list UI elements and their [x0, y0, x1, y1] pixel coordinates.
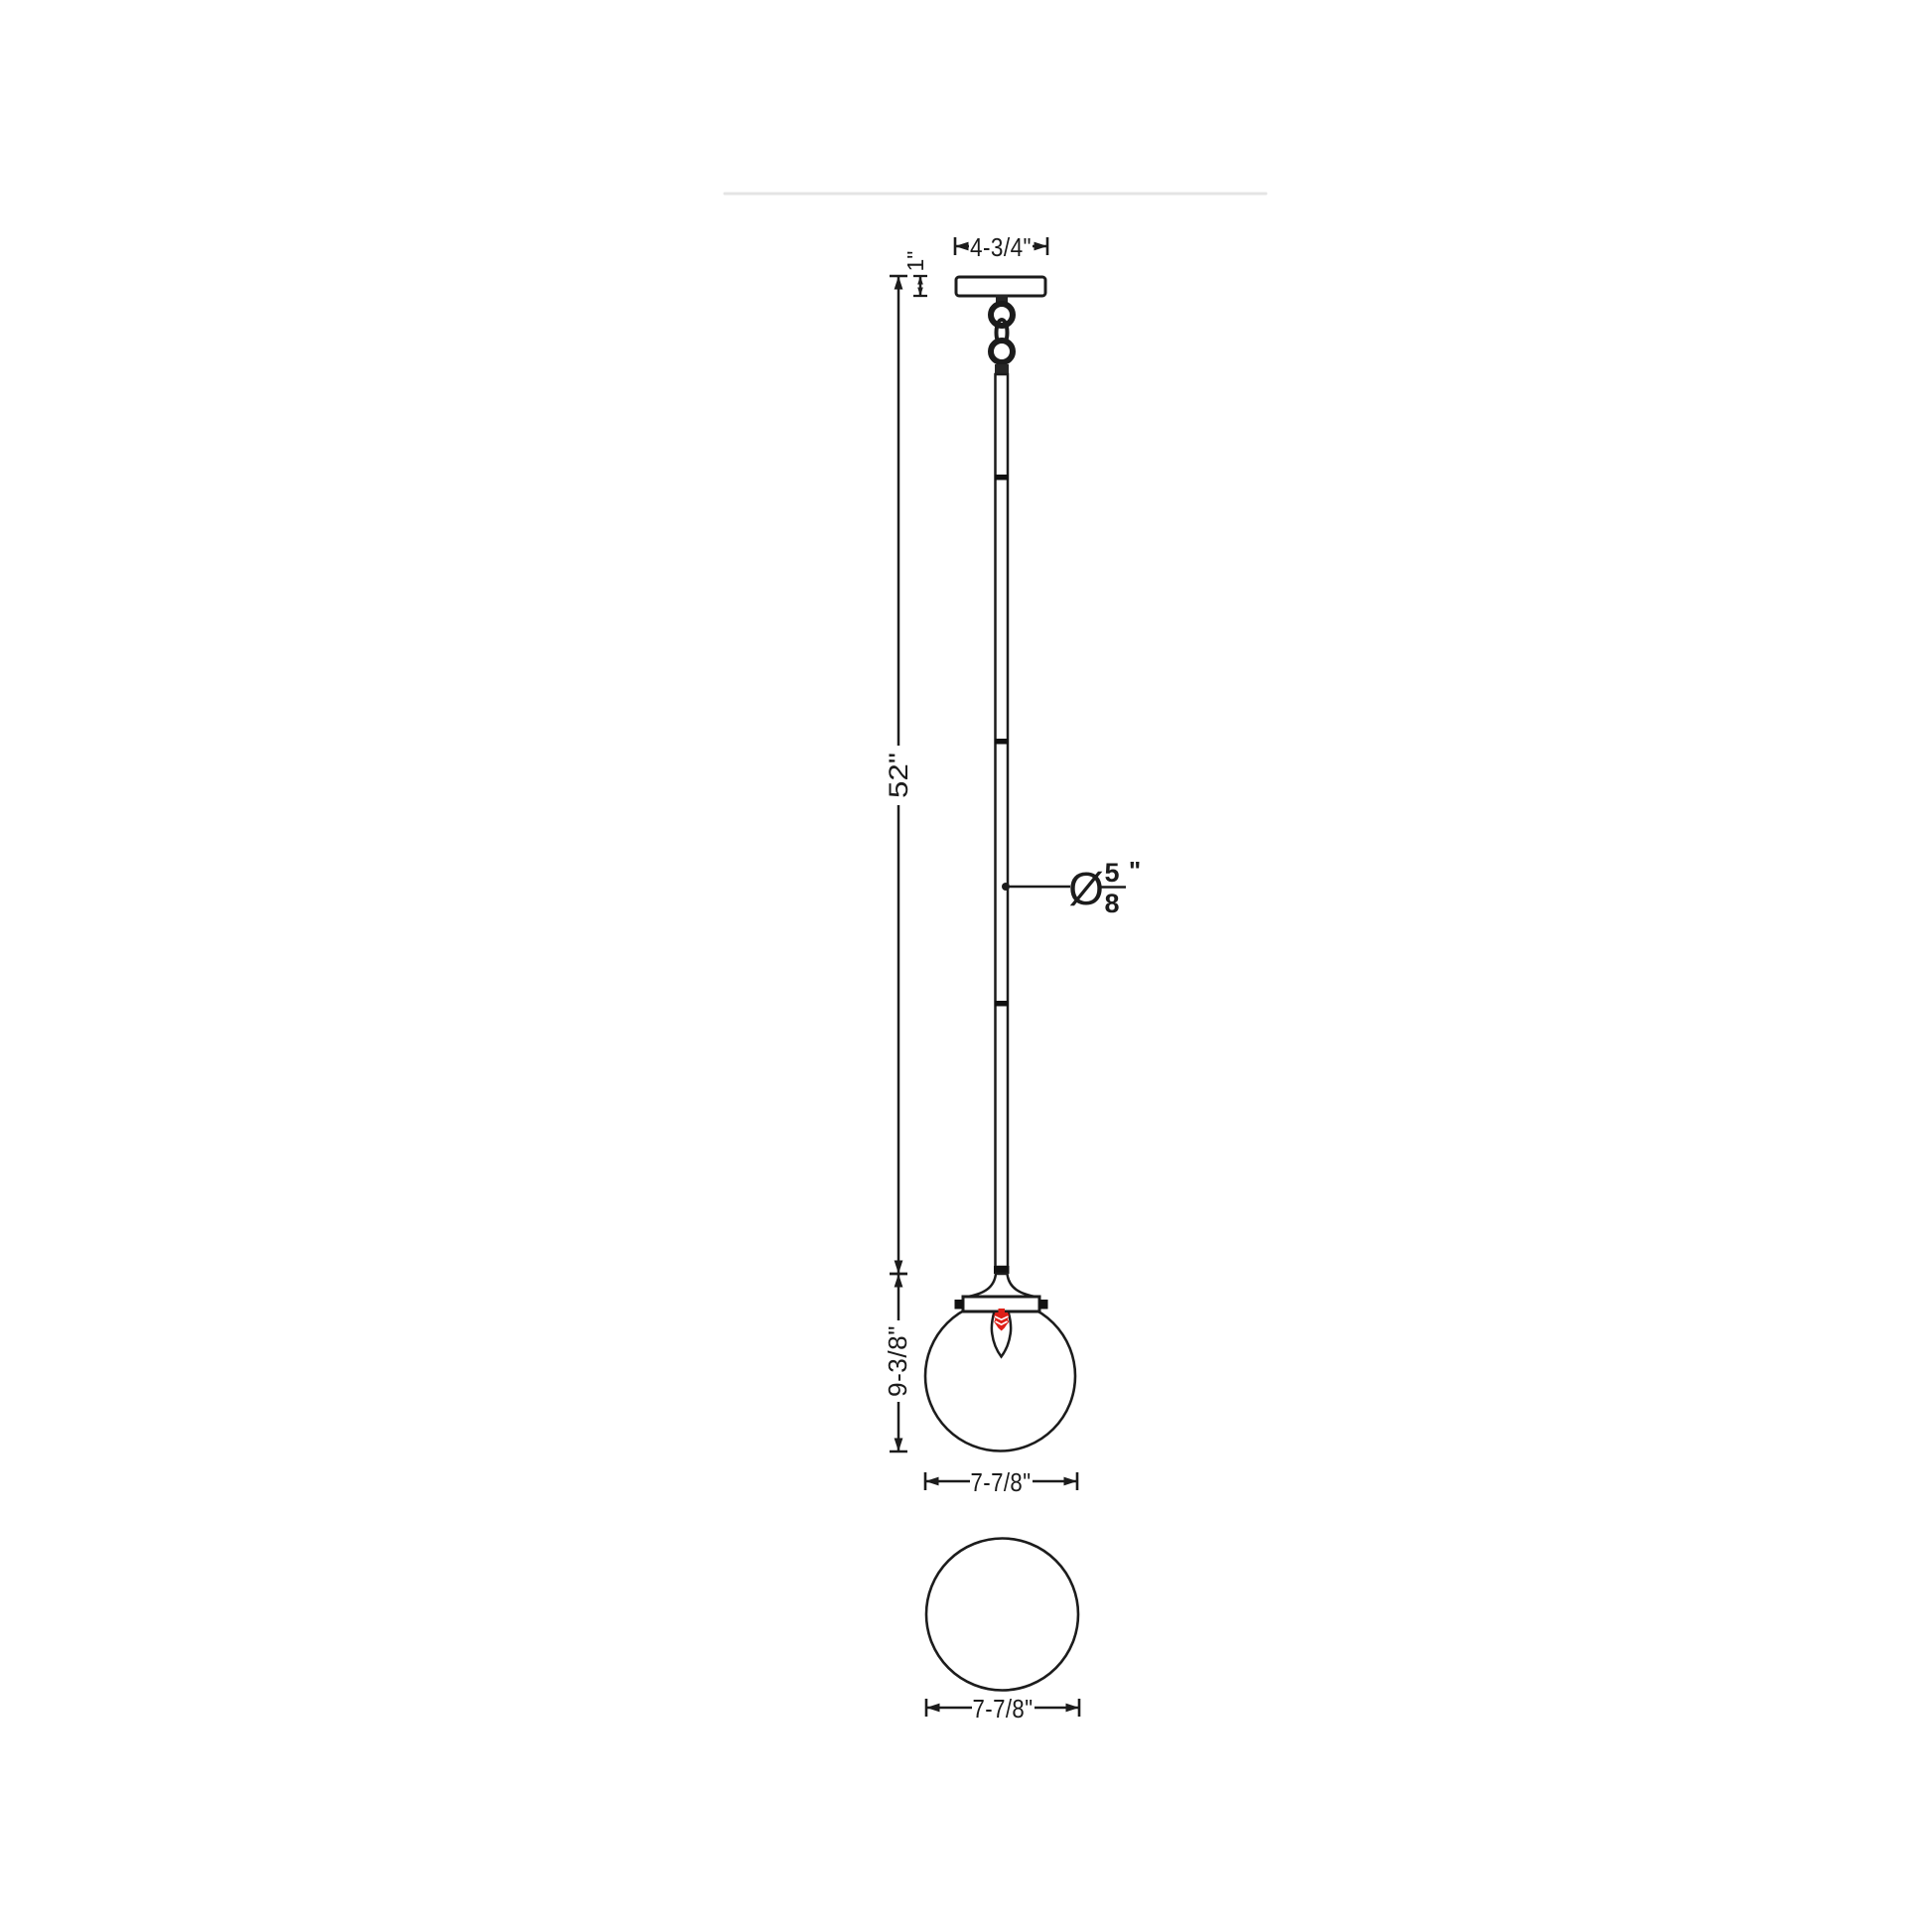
stem-top-collar	[995, 364, 1009, 374]
fixture-side-view	[925, 277, 1075, 1451]
stem-length-label: 52"	[884, 753, 913, 798]
globe-height-label: 9-3/8"	[883, 1325, 912, 1397]
stem-joint-3	[995, 1001, 1009, 1007]
stem-length-dimension: 52"	[881, 276, 916, 1274]
diameter-numerator: 5	[1104, 858, 1119, 888]
bottom-view-width-label: 7-7/8"	[973, 1694, 1034, 1724]
socket-trumpet	[965, 1274, 1038, 1298]
stem-joint-2	[995, 739, 1009, 745]
fitter-screw-left	[955, 1300, 964, 1310]
stem-diameter-callout: Ø 5 8 "	[1002, 856, 1141, 918]
fixture-bottom-view	[926, 1539, 1078, 1691]
canopy-height-label: 1"	[902, 251, 928, 272]
bottom-view-width-dimension: 7-7/8"	[926, 1693, 1079, 1724]
stem-rod	[996, 374, 1009, 1267]
hang-ring-upper	[991, 304, 1013, 326]
canopy-height-dimension: 1"	[902, 251, 928, 296]
fitter-screw-right	[1039, 1300, 1048, 1310]
pendant-dimension-drawing: 4-3/4" 1" 52" Ø 5 8 " 9-3/8" 7-7/8" 7-7/…	[0, 0, 1932, 1932]
ceiling-canopy	[956, 277, 1045, 296]
diameter-unit: "	[1129, 856, 1141, 886]
globe-width-dimension: 7-7/8"	[925, 1466, 1077, 1497]
globe-height-dimension: 9-3/8"	[881, 1274, 916, 1451]
diameter-symbol: Ø	[1068, 863, 1104, 914]
canopy-width-label: 4-3/4"	[970, 232, 1032, 262]
diameter-denominator: 8	[1104, 889, 1119, 918]
globe-bottom-view-circle	[926, 1539, 1078, 1691]
globe-width-label: 7-7/8"	[971, 1467, 1032, 1497]
hang-ring-lower	[991, 341, 1013, 362]
canopy-width-dimension: 4-3/4"	[955, 231, 1047, 262]
stem-joint-1	[995, 475, 1009, 481]
diagram-canvas: 4-3/4" 1" 52" Ø 5 8 " 9-3/8" 7-7/8" 7-7/…	[0, 0, 1932, 1932]
